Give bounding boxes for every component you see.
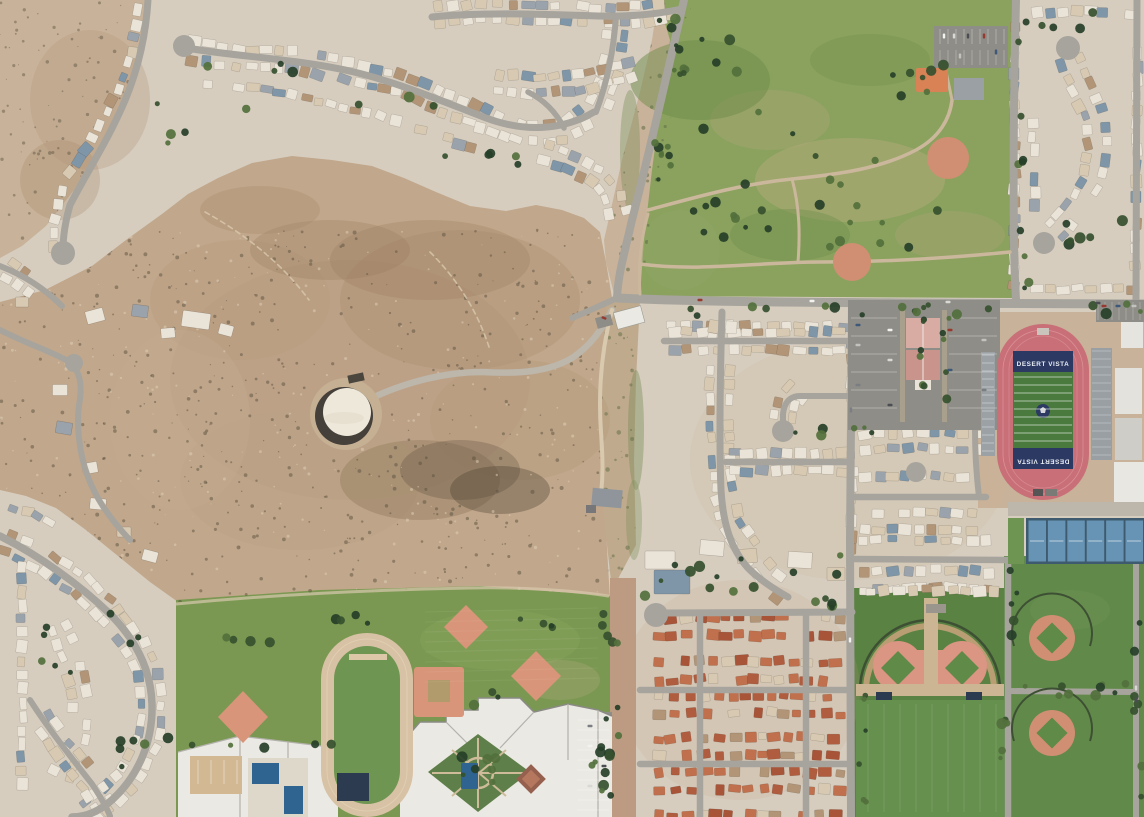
scrub-dot bbox=[604, 412, 607, 415]
scrub-dot bbox=[241, 491, 242, 492]
scrub-dot bbox=[512, 268, 514, 270]
scrub-dot bbox=[186, 409, 188, 411]
scrub-dot bbox=[270, 248, 272, 250]
house bbox=[367, 82, 378, 90]
scrub-dot bbox=[312, 487, 314, 489]
car bbox=[856, 344, 861, 346]
house bbox=[533, 74, 546, 82]
scrub-dot bbox=[349, 516, 353, 520]
scrub-dot bbox=[353, 231, 357, 235]
scrub-dot bbox=[303, 467, 306, 470]
house bbox=[138, 699, 145, 709]
tree bbox=[1019, 156, 1027, 164]
tree bbox=[495, 694, 500, 699]
house bbox=[67, 702, 78, 712]
scrub-dot bbox=[293, 446, 294, 447]
scrub-dot bbox=[626, 506, 629, 509]
scrub-dot bbox=[96, 380, 98, 382]
tree bbox=[698, 124, 708, 134]
scrub-dot bbox=[284, 368, 285, 369]
house bbox=[16, 750, 25, 762]
stadium-gate-south bbox=[1033, 489, 1043, 496]
scrub-dot bbox=[145, 350, 148, 353]
scrub-dot bbox=[276, 269, 277, 270]
house bbox=[758, 751, 768, 758]
house bbox=[16, 639, 29, 653]
scrub-dot bbox=[150, 569, 153, 572]
scrub-dot bbox=[484, 540, 485, 541]
house bbox=[681, 656, 690, 667]
tree bbox=[228, 743, 233, 748]
scrub-dot bbox=[189, 270, 191, 272]
scrub-dot bbox=[475, 426, 477, 428]
house bbox=[776, 632, 786, 640]
tree bbox=[614, 639, 621, 646]
scrub-dot bbox=[621, 457, 622, 458]
scrub-dot bbox=[261, 512, 264, 515]
scrub-dot bbox=[134, 365, 136, 367]
scrub-dot bbox=[581, 338, 583, 340]
tree bbox=[1014, 591, 1019, 596]
scrub-dot bbox=[412, 419, 415, 422]
scrub-dot bbox=[197, 244, 200, 247]
scrub-dot bbox=[578, 530, 581, 533]
tree bbox=[1024, 278, 1033, 287]
house bbox=[747, 657, 759, 668]
scrub-dot bbox=[295, 362, 298, 365]
tree bbox=[863, 728, 867, 732]
scrub-dot bbox=[577, 548, 579, 550]
scrub-dot bbox=[146, 354, 149, 357]
house bbox=[908, 585, 918, 596]
house bbox=[822, 464, 834, 474]
scrub-dot bbox=[425, 456, 428, 459]
scrub-dot bbox=[238, 481, 240, 483]
school-building-southeast bbox=[1114, 462, 1144, 506]
tree bbox=[116, 744, 125, 753]
tree bbox=[827, 599, 836, 608]
house bbox=[725, 321, 737, 334]
scrub-dot bbox=[626, 268, 630, 272]
house bbox=[704, 377, 715, 391]
tree bbox=[694, 312, 701, 319]
scrub-dot bbox=[371, 283, 373, 285]
scrub-dot bbox=[112, 313, 114, 315]
stadium-structure-south bbox=[1045, 489, 1057, 496]
scrub-dot bbox=[352, 568, 354, 570]
scrub-dot bbox=[239, 528, 243, 532]
scrub-dot bbox=[395, 300, 397, 302]
house bbox=[960, 586, 971, 596]
house bbox=[756, 447, 768, 459]
scrub-dot bbox=[139, 470, 141, 472]
house bbox=[668, 326, 682, 338]
house bbox=[760, 766, 770, 777]
house bbox=[887, 444, 900, 452]
house bbox=[1030, 172, 1038, 186]
scrub-dot bbox=[23, 8, 26, 11]
scrub-dot bbox=[41, 492, 43, 494]
practice-field bbox=[856, 700, 1004, 817]
scrub-dot bbox=[99, 393, 100, 394]
scrub-dot bbox=[79, 304, 81, 306]
scrub-dot bbox=[251, 273, 253, 275]
tree bbox=[921, 305, 926, 310]
scrub-dot bbox=[203, 456, 204, 457]
house bbox=[698, 346, 709, 356]
house bbox=[654, 677, 664, 689]
car bbox=[982, 339, 987, 341]
scrub-dot bbox=[37, 158, 38, 159]
scrub-dot bbox=[567, 567, 571, 571]
car bbox=[1116, 305, 1121, 307]
scrub-dot bbox=[107, 487, 111, 491]
scrub-dot bbox=[184, 589, 185, 590]
house bbox=[231, 62, 241, 72]
scrub-dot bbox=[350, 306, 353, 309]
tree bbox=[1101, 308, 1112, 319]
scrub-dot bbox=[120, 480, 122, 482]
scrub-dot bbox=[256, 534, 259, 537]
house bbox=[826, 750, 840, 759]
scrub-dot bbox=[470, 415, 471, 416]
house bbox=[686, 787, 696, 795]
car bbox=[888, 404, 893, 406]
scrub-dot bbox=[585, 515, 587, 517]
scrub-dot bbox=[6, 488, 7, 489]
car bbox=[810, 300, 815, 302]
tree bbox=[1096, 683, 1105, 692]
house bbox=[157, 716, 165, 729]
parking-island bbox=[942, 310, 947, 422]
scrub-dot bbox=[86, 79, 88, 81]
scrub-dot bbox=[276, 431, 278, 433]
house bbox=[730, 733, 742, 742]
scrub-dot bbox=[567, 296, 570, 299]
house bbox=[653, 710, 666, 720]
house bbox=[1071, 5, 1084, 16]
house bbox=[869, 535, 882, 544]
tree bbox=[327, 740, 336, 749]
house bbox=[792, 710, 801, 717]
scrub-dot bbox=[507, 555, 510, 558]
scrub-dot bbox=[591, 517, 595, 521]
scrub-dot bbox=[533, 318, 535, 320]
tree bbox=[469, 700, 479, 710]
scrub-dot bbox=[271, 418, 274, 421]
scrub-dot bbox=[301, 230, 304, 233]
house bbox=[1097, 7, 1108, 17]
scrub-dot bbox=[534, 281, 538, 285]
scrub-dot bbox=[255, 378, 258, 381]
tree bbox=[1088, 8, 1097, 17]
school-building-northeast bbox=[1121, 322, 1143, 348]
scrub-dot bbox=[84, 514, 85, 515]
house bbox=[605, 3, 616, 13]
scrub-dot bbox=[496, 474, 498, 476]
scrub-dot bbox=[433, 513, 434, 514]
scrub-dot bbox=[446, 444, 447, 445]
house bbox=[760, 783, 770, 793]
scrub-dot bbox=[538, 453, 541, 456]
tree bbox=[1133, 700, 1142, 709]
scrub-dot bbox=[414, 445, 417, 448]
scrub-dot bbox=[490, 237, 491, 238]
house bbox=[745, 732, 757, 743]
house bbox=[938, 525, 952, 534]
scrub-dot bbox=[367, 252, 369, 254]
house bbox=[821, 708, 833, 719]
scrub-dot bbox=[428, 268, 430, 270]
scrub-dot bbox=[157, 523, 159, 525]
scrub-dot bbox=[193, 389, 197, 393]
scrub-dot bbox=[229, 259, 232, 262]
house bbox=[809, 347, 819, 354]
car bbox=[1132, 305, 1137, 307]
house bbox=[729, 465, 741, 475]
house bbox=[246, 62, 258, 70]
scrub-dot bbox=[478, 273, 482, 277]
map-viewport[interactable]: DESERT VISTA DESERT VISTA bbox=[0, 0, 1144, 817]
tree bbox=[729, 587, 738, 596]
house bbox=[866, 589, 876, 596]
house bbox=[729, 766, 740, 777]
tree bbox=[813, 153, 819, 159]
house bbox=[17, 681, 28, 694]
tree bbox=[755, 109, 762, 116]
scrub-dot bbox=[439, 579, 441, 581]
house bbox=[1027, 118, 1039, 128]
car bbox=[995, 50, 997, 55]
scrub-dot bbox=[448, 579, 452, 583]
scrub-dot bbox=[277, 358, 280, 361]
house bbox=[747, 673, 759, 684]
house bbox=[508, 69, 519, 81]
house bbox=[50, 227, 58, 238]
scrub-dot bbox=[143, 275, 146, 278]
house bbox=[1045, 8, 1056, 19]
scrub-dot bbox=[11, 349, 14, 352]
scrub-dot bbox=[172, 253, 174, 255]
house bbox=[925, 508, 938, 516]
tree bbox=[598, 621, 607, 630]
scrub-dot bbox=[528, 544, 532, 548]
scrub-dot bbox=[646, 179, 649, 182]
scrub-dot bbox=[13, 194, 16, 197]
house bbox=[904, 566, 914, 577]
scrub-dot bbox=[458, 505, 461, 508]
scrub-dot bbox=[2, 110, 5, 113]
scrub-dot bbox=[305, 284, 308, 287]
scrub-dot bbox=[192, 529, 195, 532]
car bbox=[888, 329, 893, 331]
scrub-dot bbox=[232, 386, 234, 388]
scrub-dot bbox=[5, 463, 7, 465]
house bbox=[818, 767, 831, 777]
scrub-dot bbox=[664, 125, 667, 128]
scrub-dot bbox=[509, 514, 511, 516]
house bbox=[760, 658, 772, 667]
house bbox=[682, 750, 692, 762]
scrub-dot bbox=[458, 367, 460, 369]
tree bbox=[861, 696, 866, 701]
car bbox=[983, 34, 985, 39]
scrub-dot bbox=[250, 504, 254, 508]
scrub-dot bbox=[119, 97, 121, 99]
tree bbox=[748, 302, 757, 311]
tree bbox=[890, 72, 896, 78]
car bbox=[856, 384, 861, 386]
house bbox=[823, 694, 833, 701]
scrub-dot bbox=[51, 151, 54, 154]
scrub-dot bbox=[452, 419, 454, 421]
scrub-dot bbox=[110, 391, 112, 393]
scrub-dot bbox=[60, 345, 62, 347]
scrub-dot bbox=[432, 369, 435, 372]
tree bbox=[166, 129, 176, 139]
tennis-walkway bbox=[1008, 502, 1144, 516]
scrub-dot bbox=[195, 414, 197, 416]
scrub-dot bbox=[465, 311, 468, 314]
house bbox=[473, 121, 486, 134]
car bbox=[856, 324, 861, 326]
scrub-dot bbox=[5, 343, 7, 345]
house bbox=[361, 107, 372, 119]
scrub-dot bbox=[477, 355, 478, 356]
scrub-dot bbox=[358, 469, 362, 473]
scrub-dot bbox=[259, 303, 262, 306]
tree bbox=[832, 570, 841, 579]
scrub-dot bbox=[296, 464, 298, 466]
scrub-dot bbox=[245, 379, 247, 381]
scrub-dot bbox=[89, 57, 91, 59]
tree bbox=[601, 768, 610, 777]
scrub-dot bbox=[487, 564, 490, 567]
house bbox=[943, 473, 954, 482]
scrub-dot bbox=[172, 422, 173, 423]
scrub-dot bbox=[99, 369, 101, 371]
scrub-dot bbox=[371, 475, 372, 476]
scrub-dot bbox=[400, 325, 402, 327]
scrub-dot bbox=[324, 496, 326, 498]
house bbox=[1057, 7, 1069, 18]
scrub-dot bbox=[129, 253, 132, 256]
scrub-dot bbox=[340, 312, 343, 315]
scrub-dot bbox=[540, 432, 543, 435]
scrub-dot bbox=[166, 560, 167, 561]
scrub-dot bbox=[122, 519, 125, 522]
scrub-dot bbox=[2, 346, 6, 350]
terrain-patch bbox=[730, 209, 850, 261]
car bbox=[698, 299, 703, 301]
scrub-dot bbox=[417, 486, 419, 488]
house bbox=[616, 190, 626, 201]
scrub-dot bbox=[239, 546, 240, 547]
house bbox=[671, 767, 679, 775]
tree bbox=[203, 62, 212, 71]
house bbox=[130, 19, 143, 33]
house bbox=[1028, 131, 1036, 142]
house bbox=[66, 688, 78, 700]
tree bbox=[920, 75, 926, 81]
long-jump-pit bbox=[349, 654, 387, 660]
tree bbox=[1138, 309, 1143, 314]
scrub-dot bbox=[282, 366, 284, 368]
tree bbox=[699, 37, 704, 42]
scrub-dot bbox=[417, 413, 420, 416]
scrub-dot bbox=[121, 554, 124, 557]
tree bbox=[912, 308, 921, 317]
scrub-dot bbox=[462, 577, 463, 578]
house bbox=[550, 2, 560, 10]
house bbox=[931, 585, 945, 597]
scrub-dot bbox=[513, 317, 515, 319]
tree bbox=[815, 200, 825, 210]
house bbox=[739, 449, 753, 459]
tree bbox=[665, 144, 671, 150]
scrub-dot bbox=[443, 568, 446, 571]
house bbox=[509, 0, 518, 9]
house bbox=[956, 473, 970, 483]
tree bbox=[917, 353, 924, 360]
tree bbox=[702, 203, 709, 210]
scrub-dot bbox=[58, 362, 60, 364]
scrub-dot bbox=[564, 245, 566, 247]
scrub-dot bbox=[273, 531, 275, 533]
house bbox=[214, 61, 225, 69]
water-tank bbox=[323, 388, 371, 436]
scrub-dot bbox=[273, 517, 276, 520]
scrub-dot bbox=[432, 474, 435, 477]
tree bbox=[38, 657, 46, 665]
scrub-dot bbox=[280, 503, 282, 505]
scrub-dot bbox=[175, 487, 176, 488]
scrub-dot bbox=[292, 587, 295, 590]
tree bbox=[337, 616, 345, 624]
tree bbox=[615, 732, 622, 739]
scrub-dot bbox=[555, 458, 559, 462]
scrub-dot bbox=[386, 284, 387, 285]
school-building-east bbox=[1115, 418, 1142, 460]
scrub-dot bbox=[86, 444, 90, 448]
scrub-dot bbox=[375, 303, 378, 306]
tree bbox=[549, 623, 555, 629]
scrub-dot bbox=[56, 457, 59, 460]
scrub-dot bbox=[313, 309, 316, 312]
scrub-dot bbox=[534, 546, 537, 549]
scrub-dot bbox=[24, 320, 26, 322]
scrub-dot bbox=[152, 505, 155, 508]
scrub-dot bbox=[12, 450, 14, 452]
scrub-dot bbox=[152, 454, 155, 457]
scrub-dot bbox=[119, 328, 120, 329]
scrub-dot bbox=[161, 492, 164, 495]
scrub-dot bbox=[139, 551, 141, 553]
scrub-dot bbox=[401, 467, 402, 468]
scrub-dot bbox=[549, 373, 551, 375]
scrub-dot bbox=[443, 403, 444, 404]
house bbox=[887, 524, 899, 534]
scrub-dot bbox=[344, 357, 347, 360]
scrub-dot bbox=[562, 283, 566, 287]
house bbox=[715, 751, 724, 760]
scrub-dot bbox=[39, 150, 42, 153]
satellite-canvas[interactable]: DESERT VISTA DESERT VISTA bbox=[0, 0, 1144, 817]
scrub-dot bbox=[38, 50, 39, 51]
house bbox=[941, 537, 951, 544]
scrub-dot bbox=[95, 513, 99, 517]
scrub-dot bbox=[106, 396, 108, 398]
